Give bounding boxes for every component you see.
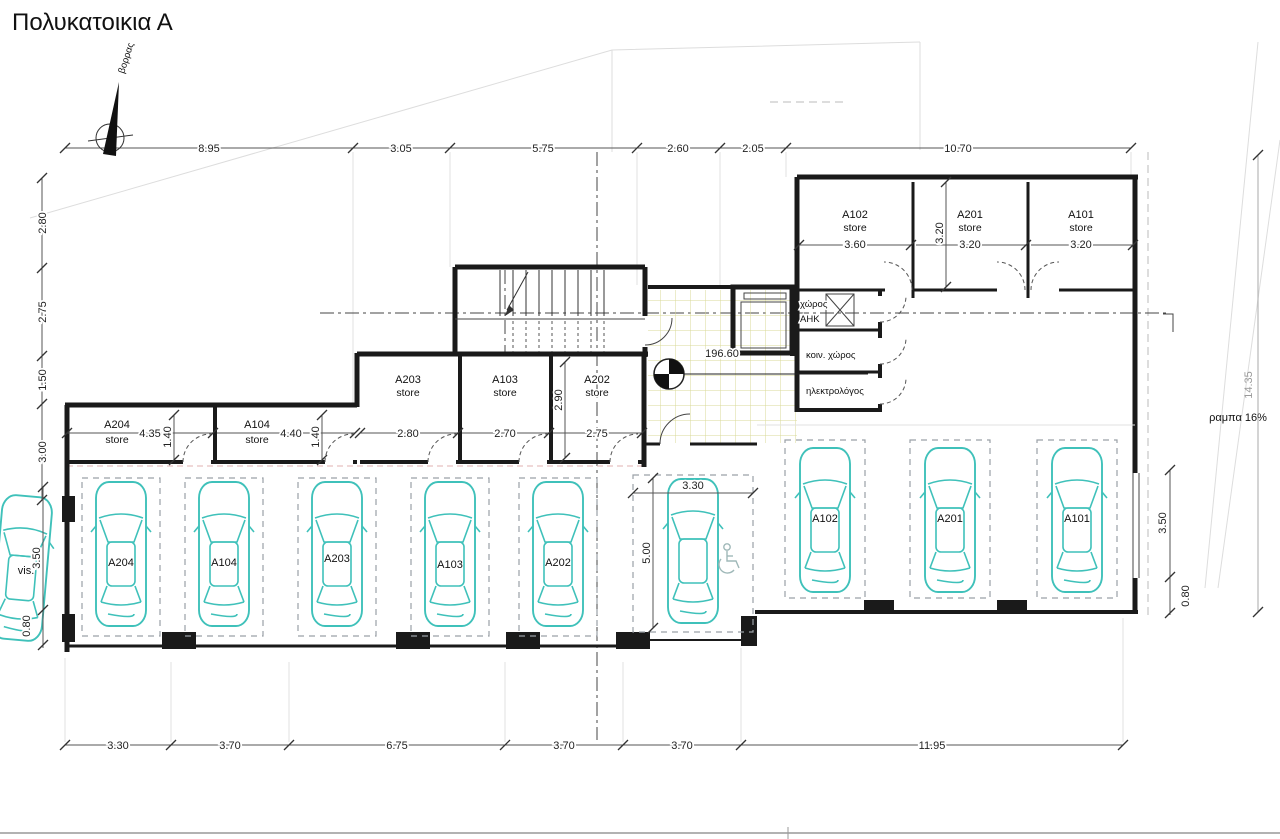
- store-a103-width: 2.70: [494, 428, 515, 440]
- ramp-annotation: ραμπα 16%: [1209, 412, 1267, 424]
- car-a103: [420, 482, 480, 626]
- level-annotation: 196.60: [705, 348, 739, 360]
- utility-room3-label: ηλεκτρολόγος: [806, 386, 864, 397]
- store-a104-depth: 1.40: [310, 426, 322, 447]
- store-a203-width: 2.80: [397, 428, 418, 440]
- store-a104-width: 4.40: [280, 428, 301, 440]
- parking-label-a101: A101: [1064, 513, 1090, 525]
- dim-bottom-4: 3.70: [671, 740, 692, 752]
- store-a103-word: store: [493, 387, 517, 399]
- car-accessible: [663, 479, 723, 623]
- store-a202-width: 2.75: [586, 428, 607, 440]
- parking-label-visitor: vis.: [18, 565, 35, 577]
- dim-left-0: 2.80: [37, 212, 49, 233]
- dim-left-3: 3.00: [37, 441, 49, 462]
- dim-top-3: 2.60: [667, 143, 688, 155]
- dim-left-2: 1.50: [37, 369, 49, 390]
- store-a103-id: A103: [492, 374, 518, 386]
- utility-shaft: [826, 294, 854, 326]
- parking-label-a103: A103: [437, 559, 463, 571]
- utility-room1-line1: χώρος: [800, 299, 828, 310]
- floor-plan-page: βορρας Πολυκατοικια Α 8.95 3.05 5.75 2.6…: [0, 0, 1280, 839]
- store-a104-id: A104: [244, 419, 270, 431]
- store-a204-id: A204: [104, 419, 130, 431]
- dim-right-offset: 0.80: [1180, 585, 1192, 606]
- store-a201-id: A201: [957, 209, 983, 221]
- section-lines: [320, 152, 1168, 740]
- store-a101-id: A101: [1068, 209, 1094, 221]
- floor-plan-svg: βορρας Πολυκατοικια Α 8.95 3.05 5.75 2.6…: [0, 0, 1280, 839]
- parking-label-a104: A104: [211, 557, 237, 569]
- dim-top-0: 8.95: [198, 143, 219, 155]
- parking-label-a202: A202: [545, 557, 571, 569]
- store-a102-width: 3.60: [844, 239, 865, 251]
- dim-accessible-width: 3.30: [682, 480, 703, 492]
- store-a101-word: store: [1069, 222, 1093, 234]
- store-a202-word: store: [585, 387, 609, 399]
- store-a203-word: store: [396, 387, 420, 399]
- stairs: [500, 270, 604, 352]
- dim-right-stall: 3.50: [1157, 512, 1169, 533]
- store-a202-id: A202: [584, 374, 610, 386]
- page-title: Πολυκατοικια Α: [12, 9, 173, 36]
- parking-label-a204: A204: [108, 557, 134, 569]
- store-a102-id: A102: [842, 209, 868, 221]
- dimension-lines: [37, 143, 1263, 750]
- store-a104-word: store: [245, 434, 269, 446]
- store-a204-depth: 1.40: [162, 426, 174, 447]
- dim-left-1: 2.75: [37, 301, 49, 322]
- dim-top-1: 3.05: [390, 143, 411, 155]
- store-a101-width: 3.20: [1070, 239, 1091, 251]
- dim-top-5: 10.70: [944, 143, 972, 155]
- dim-bottom-5: 11.95: [919, 740, 946, 752]
- dim-visitor-offset: 0.80: [21, 615, 33, 636]
- store-a201-width: 3.20: [959, 239, 980, 251]
- utility-room2-label: κοιν. χώρος: [806, 350, 856, 361]
- car-a104: [194, 482, 254, 626]
- dim-top-2: 5.75: [532, 143, 553, 155]
- parking-label-a102: A102: [812, 513, 838, 525]
- dim-bottom-1: 3.70: [219, 740, 240, 752]
- north-label: βορρας: [116, 41, 136, 75]
- dim-top-4: 2.05: [742, 143, 763, 155]
- store-a201-depth: 3.20: [934, 222, 946, 243]
- car-a204: [91, 482, 151, 626]
- north-needle: [103, 82, 119, 156]
- wheelchair-icon: [719, 544, 739, 573]
- car-a202: [528, 482, 588, 626]
- parking-label-a203: A203: [324, 553, 350, 565]
- parking-label-a201: A201: [937, 513, 963, 525]
- store-a201-word: store: [958, 222, 982, 234]
- north-arrow: βορρας: [88, 41, 137, 156]
- dim-accessible-length: 5.00: [641, 542, 653, 563]
- site-boundary-lines: [0, 42, 1280, 839]
- store-a202-depth: 2.90: [553, 389, 565, 410]
- dim-bottom-0: 3.30: [107, 740, 128, 752]
- utility-room1-line2: ΑΗΚ: [800, 314, 820, 325]
- dim-ramp-length: 14.35: [1243, 371, 1255, 399]
- store-a203-id: A203: [395, 374, 421, 386]
- store-a204-width: 4.35: [139, 428, 160, 440]
- dim-bottom-2: 6.75: [386, 740, 407, 752]
- dim-bottom-3: 3.70: [553, 740, 574, 752]
- store-a204-word: store: [105, 434, 129, 446]
- store-a102-word: store: [843, 222, 867, 234]
